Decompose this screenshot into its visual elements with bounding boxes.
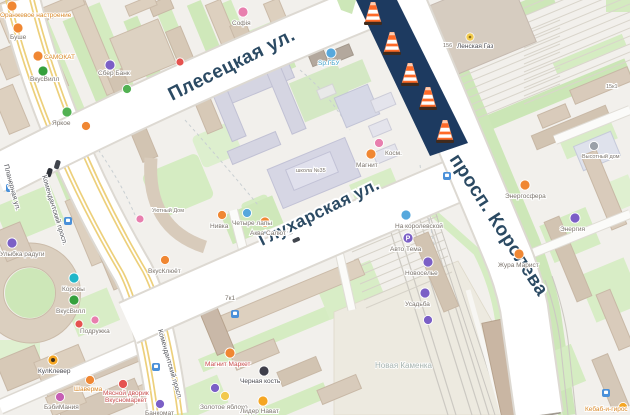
svg-text:Софія: Софія bbox=[232, 19, 251, 27]
svg-text:Ленская Газ: Ленская Газ bbox=[457, 43, 493, 50]
svg-text:ВкусВилл: ВкусВилл bbox=[30, 76, 59, 83]
svg-text:Новая Каменка: Новая Каменка bbox=[375, 361, 433, 370]
svg-text:На королевской: На королевской bbox=[395, 222, 443, 230]
svg-text:P: P bbox=[406, 236, 411, 243]
svg-text:Яркое: Яркое bbox=[52, 120, 71, 127]
svg-text:Улыбка радуги: Улыбка радуги bbox=[0, 250, 45, 258]
svg-text:Авто Тема: Авто Тема bbox=[390, 246, 422, 253]
svg-text:Косм.: Косм. bbox=[385, 150, 402, 157]
svg-text:Аква Салют: Аква Салют bbox=[250, 230, 286, 237]
svg-text:7к1: 7к1 bbox=[225, 295, 235, 302]
svg-text:КулКлевер: КулКлевер bbox=[38, 368, 71, 375]
svg-text:Буше: Буше bbox=[10, 34, 27, 41]
svg-text:Лидер Нават: Лидер Нават bbox=[240, 408, 279, 415]
svg-text:Банкомат: Банкомат bbox=[145, 410, 174, 415]
svg-text:БэбиМания: БэбиМания bbox=[44, 403, 79, 411]
svg-text:Коровы: Коровы bbox=[62, 286, 85, 293]
svg-text:Энергосфера: Энергосфера bbox=[505, 193, 546, 200]
svg-text:ВкусКлюёт: ВкусКлюёт bbox=[148, 268, 181, 275]
svg-text:Усадьба: Усадьба bbox=[405, 300, 430, 308]
svg-text:Нивка: Нивка bbox=[210, 223, 229, 230]
svg-text:Черная кость: Черная кость bbox=[240, 378, 281, 385]
svg-text:Жура Марист: Жура Марист bbox=[498, 262, 539, 269]
svg-text:Высотный дом: Высотный дом bbox=[582, 153, 620, 160]
svg-text:Кебаб-и-гирос: Кебаб-и-гирос bbox=[585, 405, 628, 413]
svg-text:ВкусВилл: ВкусВилл bbox=[56, 308, 85, 315]
svg-text:Уютный Дом: Уютный Дом bbox=[152, 207, 184, 214]
svg-text:САМОКАТ: САМОКАТ bbox=[44, 54, 75, 61]
svg-text:Четыре лапы: Четыре лапы bbox=[232, 220, 272, 227]
svg-text:Энергия: Энергия bbox=[560, 226, 585, 233]
svg-text:Шаверма: Шаверма bbox=[74, 386, 103, 393]
svg-text:15к1: 15к1 bbox=[606, 84, 618, 90]
svg-text:Магнит Маркет: Магнит Маркет bbox=[205, 361, 251, 368]
svg-text:Магнит: Магнит bbox=[356, 162, 378, 169]
svg-text:156: 156 bbox=[443, 43, 452, 49]
svg-text:Новоселье: Новоселье bbox=[405, 270, 438, 277]
svg-text:Сбер Банк: Сбер Банк bbox=[98, 69, 130, 77]
svg-text:Мясной дворик: Мясной дворик bbox=[103, 389, 149, 397]
svg-text:Вкусномаркет: Вкусномаркет bbox=[105, 397, 147, 404]
svg-text:Sp.ГБУ: Sp.ГБУ bbox=[318, 60, 340, 67]
svg-text:Оранжевое настроение: Оранжевое настроение bbox=[0, 12, 72, 19]
svg-text:школа №35: школа №35 bbox=[296, 168, 326, 174]
svg-text:Подружка: Подружка bbox=[80, 328, 110, 335]
